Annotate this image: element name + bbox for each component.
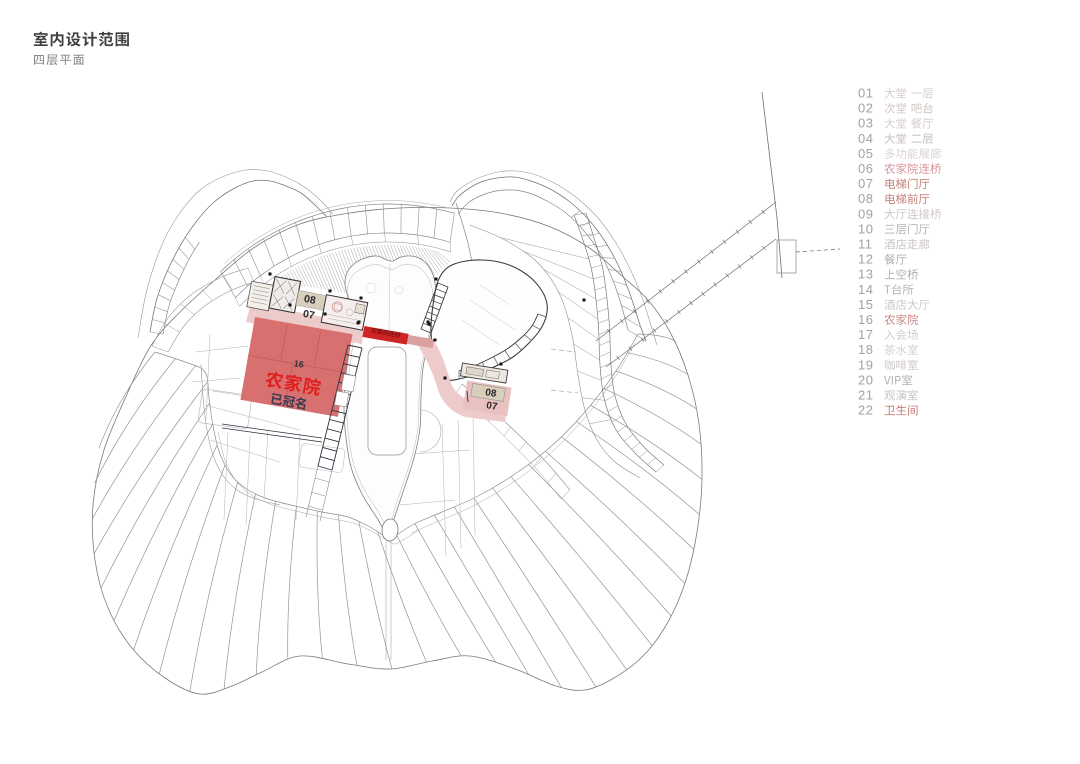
svg-text:06: 06 bbox=[858, 161, 873, 176]
svg-text:12: 12 bbox=[858, 252, 873, 267]
svg-text:01: 01 bbox=[858, 86, 873, 101]
svg-text:18: 18 bbox=[858, 342, 873, 357]
svg-text:13: 13 bbox=[858, 267, 873, 282]
svg-text:08: 08 bbox=[484, 387, 497, 400]
svg-text:21: 21 bbox=[858, 388, 873, 403]
svg-text:07: 07 bbox=[858, 176, 873, 191]
svg-text:16: 16 bbox=[858, 312, 873, 327]
svg-text:17: 17 bbox=[858, 327, 873, 342]
svg-text:20: 20 bbox=[858, 372, 873, 387]
svg-text:04: 04 bbox=[858, 131, 873, 146]
svg-text:15: 15 bbox=[858, 297, 873, 312]
svg-text:07: 07 bbox=[485, 400, 498, 413]
svg-text:14: 14 bbox=[858, 282, 873, 297]
svg-text:08: 08 bbox=[303, 293, 317, 307]
svg-text:05: 05 bbox=[858, 146, 873, 161]
svg-text:03: 03 bbox=[858, 116, 873, 131]
svg-text:02: 02 bbox=[858, 101, 873, 116]
svg-text:07: 07 bbox=[302, 308, 316, 322]
svg-text:11: 11 bbox=[858, 237, 873, 252]
svg-text:10: 10 bbox=[858, 221, 873, 236]
svg-text:16: 16 bbox=[293, 358, 305, 370]
svg-text:22: 22 bbox=[858, 403, 873, 418]
svg-text:09: 09 bbox=[858, 206, 873, 221]
svg-text:08: 08 bbox=[858, 191, 873, 206]
svg-text:19: 19 bbox=[858, 357, 873, 372]
